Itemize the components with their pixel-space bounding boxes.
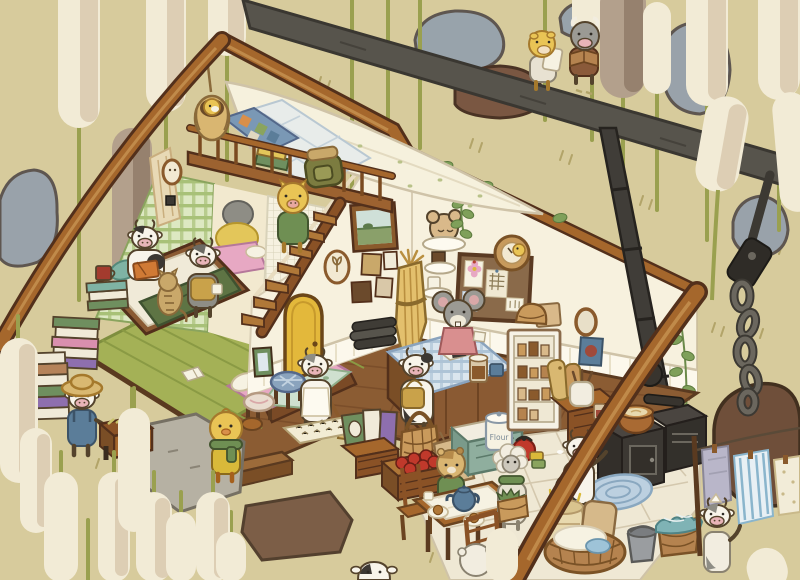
nook-pillow bbox=[246, 246, 266, 258]
orange-book bbox=[133, 260, 159, 279]
satchel bbox=[402, 388, 424, 408]
green-backpack[interactable] bbox=[303, 146, 344, 189]
scene-canvas: Flour bbox=[0, 0, 800, 580]
pig-on-stairs[interactable] bbox=[278, 180, 308, 251]
duck-in-hanging-basket[interactable] bbox=[204, 99, 220, 115]
duck-villager[interactable] bbox=[210, 409, 242, 481]
oval-portrait bbox=[163, 160, 181, 184]
towel-striped[interactable] bbox=[734, 450, 773, 524]
flour-label: Flour bbox=[490, 433, 510, 442]
shelf-plate bbox=[423, 237, 465, 251]
receipt bbox=[473, 331, 485, 341]
green-mini-frame bbox=[253, 347, 273, 376]
green-scarf bbox=[210, 440, 242, 449]
cabin-scene: Flour bbox=[0, 0, 800, 580]
pastry-shelf[interactable] bbox=[423, 210, 465, 251]
small-stool[interactable] bbox=[242, 418, 262, 430]
calf-with-mug[interactable] bbox=[186, 238, 222, 316]
teal-cloth-basket[interactable] bbox=[656, 514, 702, 556]
oval-tulip-frame bbox=[325, 251, 349, 283]
blue-cup[interactable] bbox=[490, 364, 503, 376]
pantry-top-items bbox=[516, 303, 561, 327]
blue-framed-picture bbox=[579, 337, 603, 365]
duck-clock[interactable] bbox=[495, 236, 529, 270]
door-knob bbox=[312, 341, 317, 346]
apron bbox=[302, 388, 330, 416]
wall-switch[interactable] bbox=[166, 196, 175, 205]
gray-bucket[interactable] bbox=[628, 526, 656, 562]
bolt bbox=[748, 252, 756, 260]
mug bbox=[212, 284, 222, 294]
green-scarf bbox=[499, 476, 524, 484]
oval-mirror bbox=[576, 309, 596, 335]
cattail-bottom-center bbox=[486, 528, 518, 580]
towel-dotted[interactable] bbox=[774, 456, 800, 515]
red-mug bbox=[96, 266, 111, 280]
newspaper-rolls bbox=[350, 317, 397, 350]
jam-jar[interactable] bbox=[470, 354, 488, 382]
stacked-cups[interactable] bbox=[530, 452, 545, 468]
utensil-crock bbox=[570, 370, 593, 406]
